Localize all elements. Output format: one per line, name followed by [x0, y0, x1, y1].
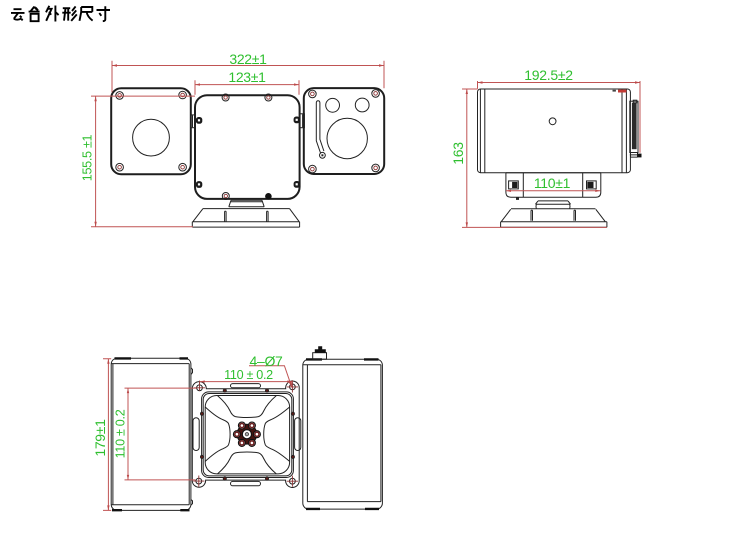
svg-text:4–Ø7: 4–Ø7	[249, 353, 283, 369]
svg-text:123±1: 123±1	[228, 69, 266, 85]
svg-text:110±1: 110±1	[534, 175, 571, 191]
svg-text:155.5 ±1: 155.5 ±1	[81, 134, 95, 181]
svg-text:110 ± 0.2: 110 ± 0.2	[224, 368, 273, 382]
svg-text:192.5±2: 192.5±2	[524, 67, 573, 83]
svg-text:322±1: 322±1	[229, 51, 267, 67]
svg-text:110 ± 0.2: 110 ± 0.2	[114, 409, 128, 458]
svg-text:163: 163	[450, 142, 466, 165]
svg-text:179±1: 179±1	[92, 419, 108, 457]
